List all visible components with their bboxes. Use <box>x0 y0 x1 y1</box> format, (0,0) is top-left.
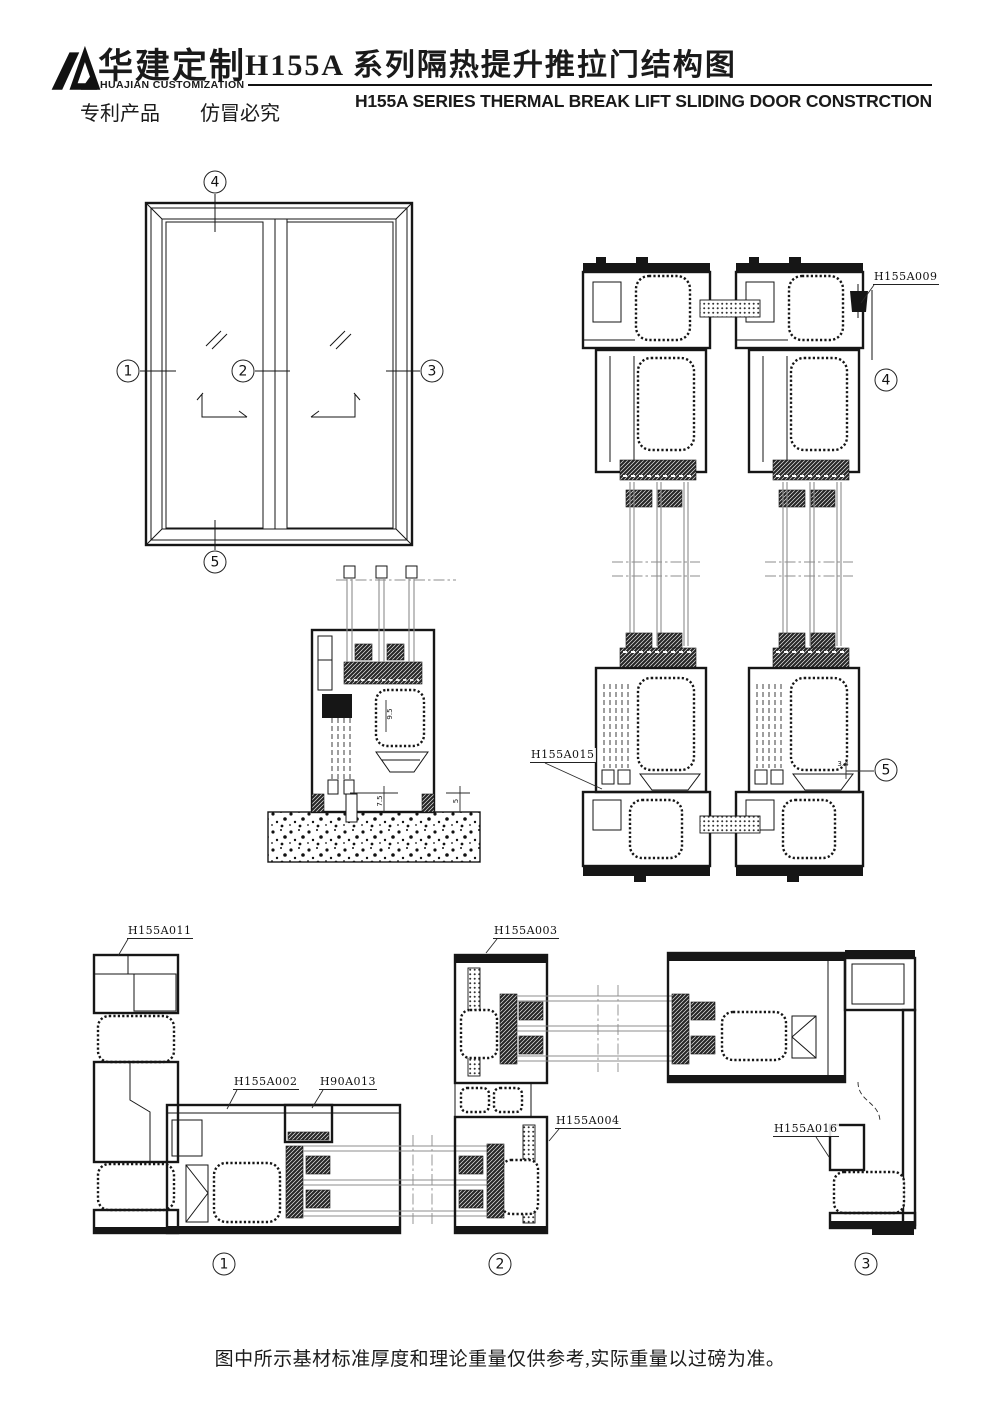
elevation-marker-2: 2 <box>232 360 255 383</box>
vertical-section-marker-4: 4 <box>875 369 898 392</box>
page: 华建定制 HUAJIAN CUSTOMIZATION 专利产品 仿冒必究 H15… <box>0 0 1000 1415</box>
footer-note: 图中所示基材标准厚度和理论重量仅供参考,实际重量以过磅为准。 <box>0 1344 1000 1371</box>
brand-name-en: HUAJIAN CUSTOMIZATION <box>100 79 245 91</box>
huajian-logo-icon <box>50 38 102 96</box>
open-direction-left <box>197 393 247 417</box>
h155a009-part <box>850 291 868 312</box>
callout-h155a015: H155A015 <box>530 748 596 763</box>
callout-h155a009: H155A009 <box>873 270 939 285</box>
anchor-pin <box>346 794 357 822</box>
callout-h155a004: H155A004 <box>555 1114 621 1129</box>
glass-symbol <box>206 331 351 349</box>
callout-h155a003: H155A003 <box>493 924 559 939</box>
elevation-marker-1: 1 <box>117 360 140 383</box>
horizontal-section-marker-3: 3 <box>855 1253 878 1276</box>
horizontal-section-marker-2: 2 <box>489 1253 512 1276</box>
callout-h155a011: H155A011 <box>127 924 193 939</box>
sill-link-duct <box>700 816 760 833</box>
head-link-duct <box>700 300 760 317</box>
marker-leader-lines <box>140 194 420 550</box>
open-direction-right <box>311 393 360 417</box>
sill-section-drawing <box>268 566 480 862</box>
dim-bottom-gap: 3.4 <box>837 760 848 768</box>
dim-sill-edge: 5 <box>452 799 460 803</box>
callout-h155a016: H155A016 <box>773 1122 839 1137</box>
dim-sill-clearance: 7.5 <box>376 795 384 806</box>
horizontal-section-marker-1: 1 <box>213 1253 236 1276</box>
title-divider <box>248 84 932 86</box>
callout-h155a002: H155A002 <box>233 1075 299 1090</box>
concrete-base <box>268 812 480 862</box>
patent-notice: 专利产品 仿冒必究 <box>80 97 280 126</box>
mullion <box>275 219 287 529</box>
elevation-marker-5: 5 <box>204 551 227 574</box>
page-title-en: H155A SERIES THERMAL BREAK LIFT SLIDING … <box>330 91 932 112</box>
elevation-marker-3: 3 <box>421 360 444 383</box>
dim-sill-inner-height: 9.5 <box>386 708 394 719</box>
elevation-marker-4: 4 <box>204 171 227 194</box>
page-title-cn: H155A 系列隔热提升推拉门结构图 <box>245 40 737 84</box>
right-sash <box>287 222 393 528</box>
horizontal-section-drawing <box>94 939 915 1235</box>
vertical-section-drawing <box>545 257 874 882</box>
callout-h90a013: H90A013 <box>319 1075 377 1090</box>
elevation-drawing <box>140 194 420 550</box>
vertical-section-marker-5: 5 <box>875 759 898 782</box>
drawing-canvas <box>0 0 1000 1415</box>
